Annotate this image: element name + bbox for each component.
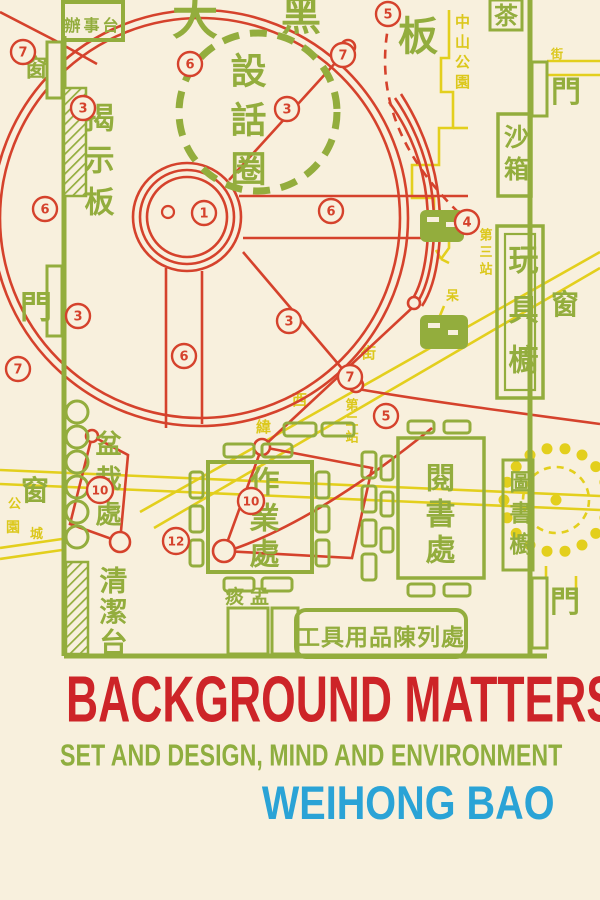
plan-marker-10: 10 <box>238 488 264 514</box>
plan-marker-3: 3 <box>66 304 90 328</box>
svg-text:3: 3 <box>78 102 87 117</box>
tool-display-label: 工具用品陳列處 <box>297 625 465 651</box>
plan-marker-10: 10 <box>87 477 113 503</box>
svg-text:10: 10 <box>92 484 109 498</box>
book-subtitle: SET AND DESIGN, MIND AND ENVIRONMENT <box>60 741 540 771</box>
plan-marker-7: 7 <box>11 40 35 64</box>
talking-circle-label: 設話圈 <box>225 52 267 199</box>
svg-text:7: 7 <box>345 371 354 386</box>
sandbox-label: 沙箱 <box>501 124 530 188</box>
svg-text:12: 12 <box>168 535 185 549</box>
park-wall-label-1: 公 <box>8 497 21 512</box>
zhongshan-park-label: 中山公園 <box>453 13 471 94</box>
plan-marker-3: 3 <box>275 97 299 121</box>
plan-marker-7: 7 <box>338 365 362 389</box>
floor-plan-diagram: 中山公園 第三站 第二站 街 街 西 緯 呆 公 園 城 <box>0 0 600 672</box>
plan-marker-7: 7 <box>6 357 30 381</box>
svg-text:3: 3 <box>73 310 82 325</box>
svg-text:1: 1 <box>199 207 208 222</box>
big-blackboard-char-1: 大 <box>172 0 218 45</box>
office-desk-label: 辦事台 <box>64 16 121 35</box>
big-blackboard-char-3: 板 <box>398 14 438 60</box>
svg-text:7: 7 <box>13 363 22 378</box>
plan-marker-12: 12 <box>163 528 189 554</box>
svg-text:6: 6 <box>326 205 335 220</box>
svg-text:3: 3 <box>284 315 293 330</box>
plan-marker-3: 3 <box>71 96 95 120</box>
street-wei-label: 緯 <box>256 418 271 436</box>
big-blackboard-char-2: 黑 <box>281 0 321 40</box>
park-wall-label-3: 城 <box>30 526 43 542</box>
tea-box-label: 茶 <box>494 2 519 30</box>
reading-area-label: 閱書處 <box>420 462 456 570</box>
svg-text:6: 6 <box>179 350 188 365</box>
plan-marker-1: 1 <box>192 201 216 225</box>
spittoon-label: 痰盂 <box>225 585 275 608</box>
svg-text:10: 10 <box>243 495 260 509</box>
svg-text:4: 4 <box>462 216 471 231</box>
cleaning-table-label: 清潔台 <box>96 566 129 659</box>
street-label-right: 街 <box>550 46 563 61</box>
svg-text:6: 6 <box>185 58 194 73</box>
svg-text:6: 6 <box>40 203 49 218</box>
svg-text:5: 5 <box>381 410 390 425</box>
plan-marker-5: 5 <box>374 404 398 428</box>
station-3-label: 第三站 <box>477 227 493 279</box>
window-label-right: 窗 <box>551 288 579 321</box>
plan-marker-4: 4 <box>455 210 479 234</box>
book-title: BACKGROUND MATTERS <box>66 668 534 733</box>
park-wall-label-2: 園 <box>6 520 20 536</box>
svg-text:7: 7 <box>18 46 27 61</box>
toy-cabinet-label: 玩具櫥 <box>503 244 539 394</box>
svg-text:5: 5 <box>383 8 392 23</box>
title-block: BACKGROUND MATTERS SET AND DESIGN, MIND … <box>0 672 600 825</box>
plan-marker-6: 6 <box>33 197 57 221</box>
book-cover: 中山公園 第三站 第二站 街 街 西 緯 呆 公 園 城 <box>0 0 600 900</box>
plan-marker-6: 6 <box>172 344 196 368</box>
work-area-label: 作業處 <box>244 466 280 574</box>
author-name: WEIHONG BAO <box>261 779 554 827</box>
book-cabinet-label: 圖書櫥 <box>505 470 533 563</box>
window-label-left: 窗 <box>21 474 49 507</box>
plan-marker-6: 6 <box>319 199 343 223</box>
svg-text:7: 7 <box>338 49 347 64</box>
tree-mark: 呆 <box>445 289 460 304</box>
svg-text:3: 3 <box>282 103 291 118</box>
door-label-righttop: 門 <box>551 75 581 110</box>
plan-marker-5: 5 <box>376 2 400 26</box>
plan-marker-3: 3 <box>277 309 301 333</box>
door-label-rightbottom: 門 <box>550 585 580 620</box>
plan-marker-7: 7 <box>331 43 355 67</box>
door-label-left: 門 <box>20 288 52 326</box>
plan-marker-6: 6 <box>178 52 202 76</box>
